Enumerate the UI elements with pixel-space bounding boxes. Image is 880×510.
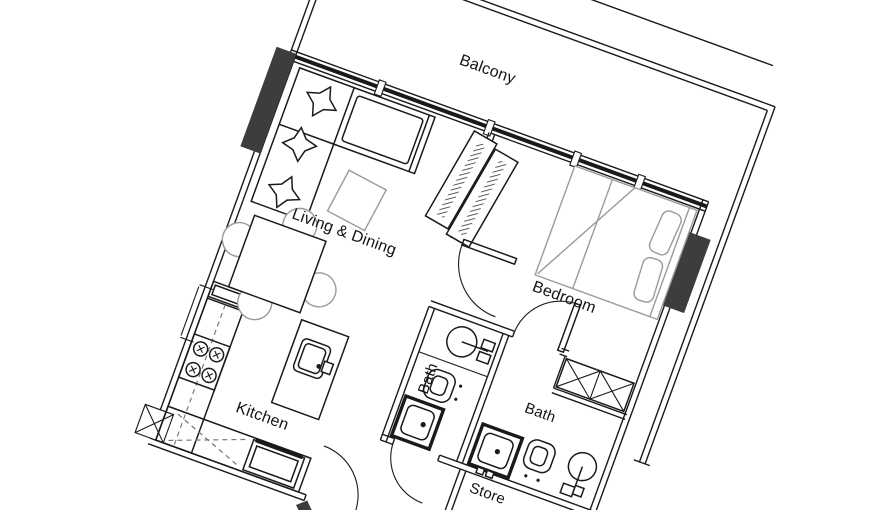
floor-plan-drawing bbox=[3, 0, 880, 510]
stove-icon bbox=[179, 334, 230, 390]
entry-door-swing bbox=[306, 446, 373, 510]
bedroom-door-swing bbox=[443, 245, 515, 317]
kitchen-island bbox=[272, 320, 349, 420]
floor-plan-canvas: Balcony Living & Dining Bedroom Kitchen … bbox=[0, 0, 880, 510]
basin-icon bbox=[558, 449, 600, 502]
toilet-icon bbox=[518, 437, 558, 484]
living-bedroom-partition bbox=[401, 122, 554, 317]
entry-door-leaf bbox=[282, 497, 344, 510]
